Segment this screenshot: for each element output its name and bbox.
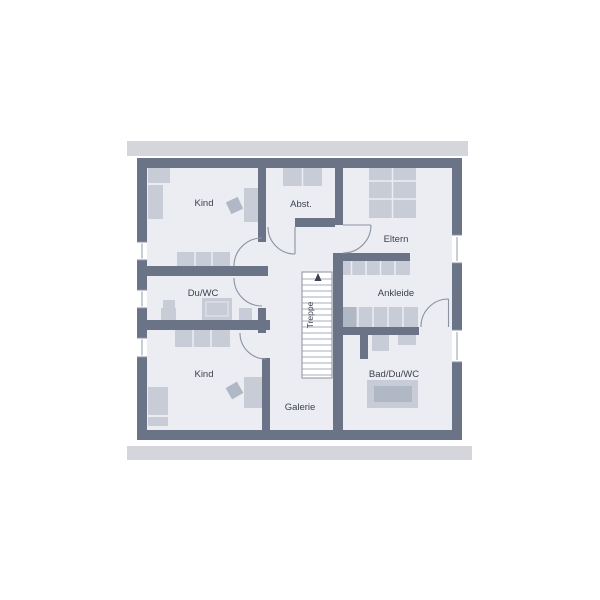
shower bbox=[202, 298, 232, 320]
bed bbox=[175, 330, 230, 347]
wall-kind-abst bbox=[258, 168, 266, 242]
exterior-wall-bottom bbox=[137, 430, 462, 440]
toilet-cistern bbox=[163, 300, 175, 308]
room-label-galerie: Galerie bbox=[285, 402, 316, 413]
wardrobe bbox=[148, 417, 168, 426]
floor-plan-drawing: Kind Abst. Eltern Du/WC Ankleide Kind Ba… bbox=[0, 0, 600, 600]
room-label-badduwc: Bad/Du/WC bbox=[369, 369, 419, 380]
floor-plan-canvas: Kind Abst. Eltern Du/WC Ankleide Kind Ba… bbox=[0, 0, 600, 600]
wardrobe-segment bbox=[343, 307, 356, 327]
washbasin bbox=[239, 308, 252, 320]
wall-shower-partition bbox=[360, 335, 368, 359]
toilet bbox=[161, 308, 176, 320]
wall-ankleide-bad bbox=[343, 327, 419, 335]
wall-eltern-ankleide bbox=[333, 253, 410, 261]
room-label-kind-top: Kind bbox=[194, 198, 213, 209]
room-label-abst: Abst. bbox=[290, 199, 312, 210]
roof-edge-bottom bbox=[127, 446, 472, 460]
exterior-wall-top bbox=[137, 158, 462, 168]
wardrobe-row bbox=[337, 261, 410, 275]
room-label-eltern: Eltern bbox=[384, 234, 409, 245]
wardrobe bbox=[148, 185, 163, 219]
washbasin bbox=[398, 335, 416, 345]
desk bbox=[244, 377, 263, 408]
wall-hall-ankleide-bad bbox=[333, 261, 343, 430]
room-label-treppe: Treppe bbox=[305, 301, 315, 328]
room-label-duwc: Du/WC bbox=[188, 288, 219, 299]
wall-duwc-kind bbox=[147, 320, 270, 330]
wall-abst-south bbox=[295, 218, 335, 227]
wardrobe bbox=[148, 168, 170, 183]
wall-kind-duwc bbox=[147, 266, 268, 276]
room-label-ankleide: Ankleide bbox=[378, 288, 414, 299]
wall-abst-eltern bbox=[335, 168, 343, 225]
roof-edge-top bbox=[127, 141, 468, 156]
room-label-kind-bottom: Kind bbox=[194, 369, 213, 380]
shower bbox=[372, 335, 389, 351]
wardrobe bbox=[148, 387, 168, 415]
bed bbox=[177, 252, 230, 266]
wall-kind-galerie bbox=[262, 358, 270, 430]
bathtub-basin bbox=[374, 386, 412, 402]
exterior-wall-right bbox=[452, 158, 462, 440]
